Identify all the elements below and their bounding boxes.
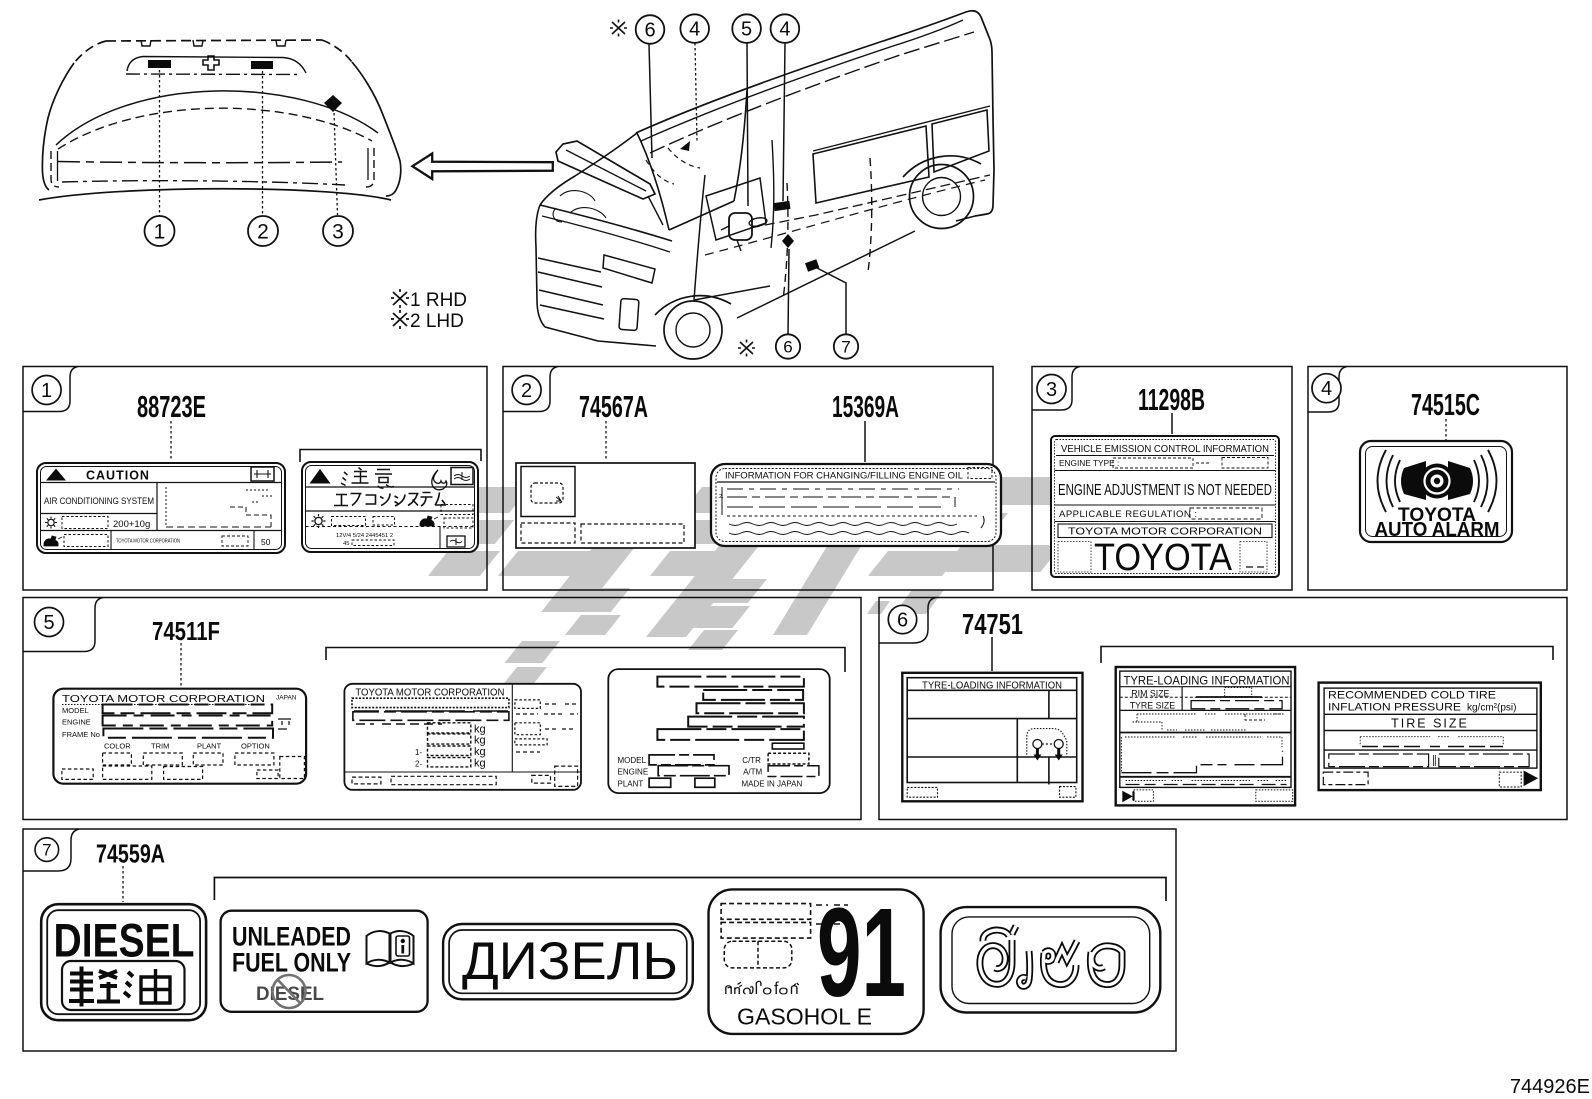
svg-text:ENGINE: ENGINE (62, 718, 91, 727)
svg-text:APPLICABLE REGULATION :: APPLICABLE REGULATION : (1059, 509, 1198, 520)
svg-text:RECOMMENDED COLD TIRE: RECOMMENDED COLD TIRE (1328, 690, 1496, 702)
svg-text:12V/4 5/24 2445451 2: 12V/4 5/24 2445451 2 (336, 533, 393, 539)
svg-text:PLANT: PLANT (618, 780, 644, 789)
svg-text:1: 1 (154, 221, 166, 244)
svg-text:INFORMATION FOR CHANGING/FILL: INFORMATION FOR CHANGING/FILLING ENGINE … (725, 471, 963, 481)
svg-text:11298B: 11298B (1138, 382, 1205, 417)
svg-text:74567A: 74567A (579, 389, 648, 424)
svg-text:JAPAN: JAPAN (276, 695, 297, 702)
svg-text:2: 2 (521, 380, 532, 402)
svg-text:PLANT: PLANT (197, 742, 222, 751)
svg-text:7: 7 (841, 338, 850, 357)
svg-text:TYRE SIZE: TYRE SIZE (1130, 701, 1176, 711)
svg-text:4: 4 (689, 19, 700, 41)
svg-text:TOYOTA MOTOR CORPORATION: TOYOTA MOTOR CORPORATION (62, 693, 265, 705)
svg-text:7: 7 (42, 841, 51, 860)
svg-text:ДИЗЕЛЬ: ДИЗЕЛЬ (462, 932, 678, 991)
svg-text:TIRE SIZE: TIRE SIZE (1391, 717, 1469, 731)
svg-text:2 LHD: 2 LHD (410, 311, 464, 332)
svg-text:744926E: 744926E (1510, 1076, 1590, 1098)
svg-text:74515C: 74515C (1411, 387, 1480, 422)
svg-text:kg: kg (474, 746, 486, 758)
svg-text:74559A: 74559A (96, 839, 165, 869)
svg-text:6: 6 (783, 338, 792, 357)
svg-text:TOYOTA MOTOR CORPORATION: TOYOTA MOTOR CORPORATION (1068, 526, 1262, 538)
svg-text:5: 5 (43, 612, 54, 634)
svg-text:4: 4 (779, 19, 790, 41)
svg-text:1 RHD: 1 RHD (410, 290, 467, 311)
svg-text:TOYOTA: TOYOTA (1094, 537, 1233, 579)
svg-text:6: 6 (644, 20, 655, 42)
svg-text:TOYOTA MOTOR CORPORATION: TOYOTA MOTOR CORPORATION (355, 688, 504, 699)
svg-text:INFLATION PRESSURE: INFLATION PRESSURE (1328, 702, 1461, 714)
svg-text:C/TR: C/TR (742, 756, 761, 765)
svg-text:MADE IN JAPAN: MADE IN JAPAN (742, 780, 803, 789)
svg-text:GASOHOL E: GASOHOL E (737, 1004, 872, 1030)
svg-text:1-: 1- (415, 748, 422, 757)
svg-text:DIESEL: DIESEL (54, 914, 195, 967)
svg-text:3: 3 (1046, 379, 1057, 401)
svg-text:74751: 74751 (962, 609, 1023, 641)
svg-text:200+10g: 200+10g (113, 519, 150, 530)
svg-text:MODEL: MODEL (62, 706, 89, 715)
svg-text:MODEL: MODEL (618, 756, 647, 765)
svg-text:!: ! (54, 472, 57, 482)
svg-text:ENGINE ADJUSTMENT IS NOT NEEDE: ENGINE ADJUSTMENT IS NOT NEEDED (1058, 482, 1272, 499)
svg-text:A/TM: A/TM (743, 768, 762, 777)
svg-text:4: 4 (1321, 378, 1332, 400)
svg-text:2-: 2- (415, 760, 422, 769)
svg-text:3: 3 (332, 221, 344, 244)
svg-text:6: 6 (897, 610, 908, 632)
svg-text:50: 50 (261, 537, 271, 547)
svg-text:AIR CONDITIONING SYSTEM: AIR CONDITIONING SYSTEM (44, 496, 154, 506)
svg-text:COLOR: COLOR (104, 742, 131, 751)
svg-text:1: 1 (41, 380, 52, 402)
svg-text:15369A: 15369A (832, 389, 899, 424)
svg-text:TYRE-LOADING INFORMATION: TYRE-LOADING INFORMATION (1124, 674, 1290, 688)
svg-text:ENGINE TYPE :: ENGINE TYPE : (1059, 458, 1119, 468)
svg-text:2: 2 (257, 221, 269, 244)
svg-text:91: 91 (817, 882, 906, 1023)
svg-text:VEHICLE EMISSION CONTROL INFOR: VEHICLE EMISSION CONTROL INFORMATION (1061, 444, 1269, 455)
svg-text:74511F: 74511F (152, 616, 220, 646)
svg-text:kg: kg (474, 758, 486, 770)
svg-text:88723E: 88723E (137, 389, 206, 424)
svg-text:FUEL ONLY: FUEL ONLY (232, 948, 351, 978)
svg-text:!: ! (318, 474, 321, 485)
svg-text:TRIM: TRIM (151, 742, 169, 751)
svg-text:OPTION: OPTION (241, 742, 270, 751)
svg-text:5: 5 (741, 19, 752, 41)
svg-text:CAUTION: CAUTION (86, 469, 150, 483)
svg-text:FRAME No: FRAME No (62, 730, 100, 739)
svg-text:AUTO ALARM: AUTO ALARM (1375, 519, 1500, 541)
svg-text:ENGINE: ENGINE (618, 768, 649, 777)
svg-text:TOYOTA MOTOR CORPORATION: TOYOTA MOTOR CORPORATION (116, 539, 180, 545)
svg-text:2.: 2. (719, 494, 724, 500)
svg-text:45: 45 (343, 541, 349, 547)
svg-text:kg: kg (474, 735, 486, 747)
svg-text:kg/cm²(psi): kg/cm²(psi) (1467, 703, 1516, 714)
